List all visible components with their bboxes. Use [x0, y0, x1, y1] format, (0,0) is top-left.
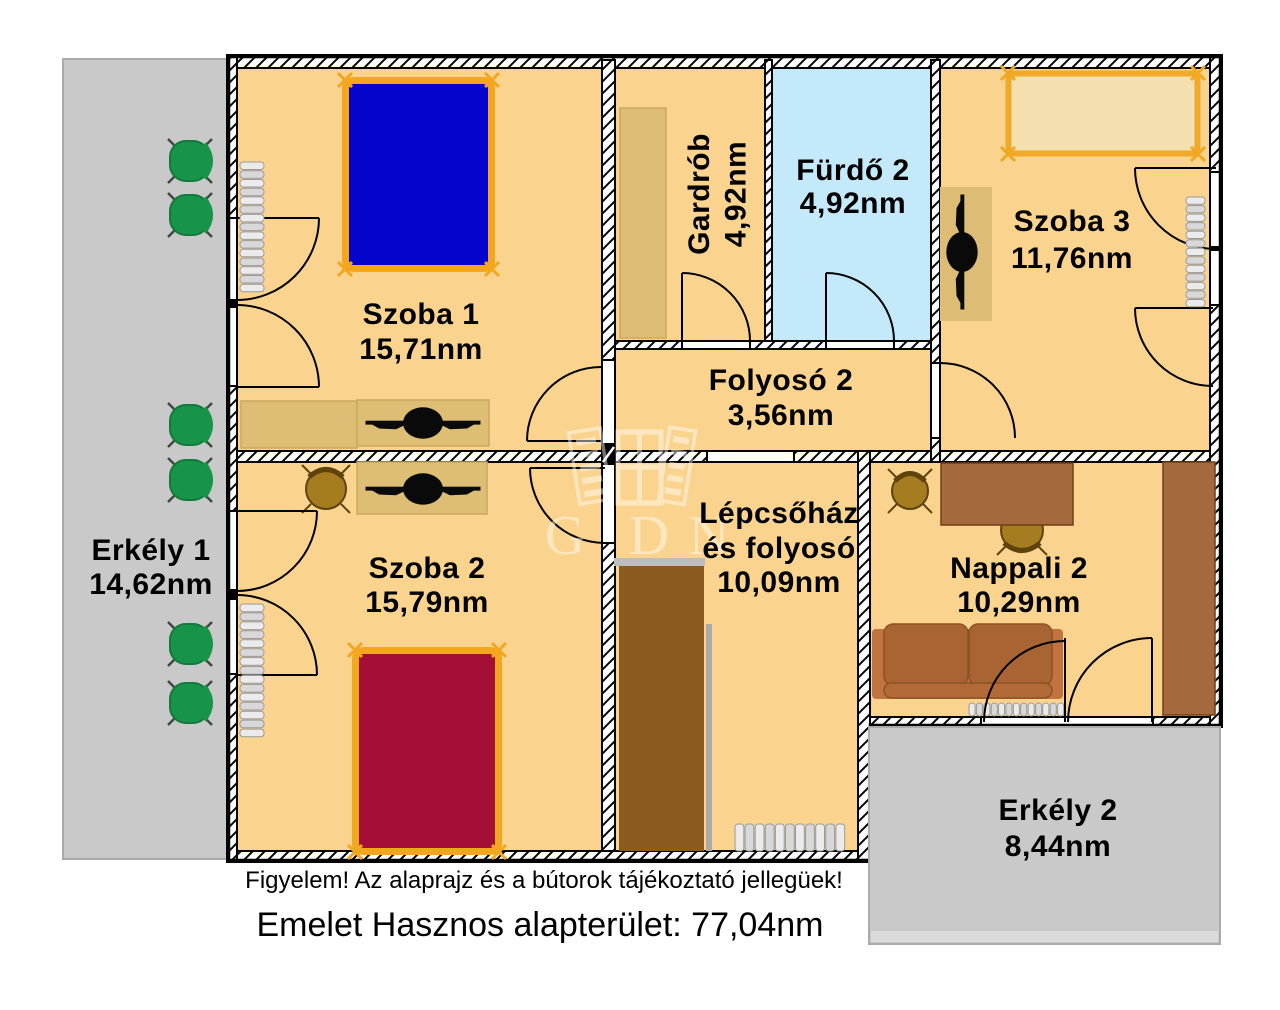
svg-text:10,09nm: 10,09nm [717, 566, 841, 599]
svg-text:Nappali 2: Nappali 2 [950, 552, 1088, 585]
svg-text:4,92nm: 4,92nm [720, 141, 753, 247]
svg-text:11,76nm: 11,76nm [1011, 242, 1133, 275]
svg-text:8,44nm: 8,44nm [1005, 830, 1111, 863]
svg-text:15,71nm: 15,71nm [359, 333, 483, 366]
svg-text:Szoba 2: Szoba 2 [369, 552, 486, 585]
svg-text:és folyosó: és folyosó [702, 532, 855, 565]
svg-text:Erkély 1: Erkély 1 [91, 534, 210, 567]
svg-text:15,79nm: 15,79nm [365, 586, 489, 619]
svg-text:Szoba 1: Szoba 1 [363, 298, 480, 331]
svg-text:Fürdő 2: Fürdő 2 [796, 154, 910, 187]
svg-text:Figyelem! Az alaprajz és a bút: Figyelem! Az alaprajz és a bútorok tájék… [245, 867, 843, 894]
svg-text:14,62nm: 14,62nm [89, 568, 213, 601]
svg-text:Folyosó 2: Folyosó 2 [709, 364, 854, 397]
svg-text:D: D [629, 505, 669, 567]
svg-text:Lépcsőház: Lépcsőház [699, 497, 859, 530]
svg-text:10,29nm: 10,29nm [957, 586, 1081, 619]
svg-text:Gardrób: Gardrób [683, 133, 716, 255]
svg-text:Emelet Hasznos alapterület: 77: Emelet Hasznos alapterület: 77,04nm [257, 906, 824, 944]
svg-text:4,92nm: 4,92nm [800, 187, 906, 220]
svg-text:3,56nm: 3,56nm [728, 399, 834, 432]
svg-text:G: G [545, 505, 585, 567]
svg-text:Erkély 2: Erkély 2 [998, 794, 1117, 827]
svg-text:Szoba 3: Szoba 3 [1014, 205, 1131, 238]
